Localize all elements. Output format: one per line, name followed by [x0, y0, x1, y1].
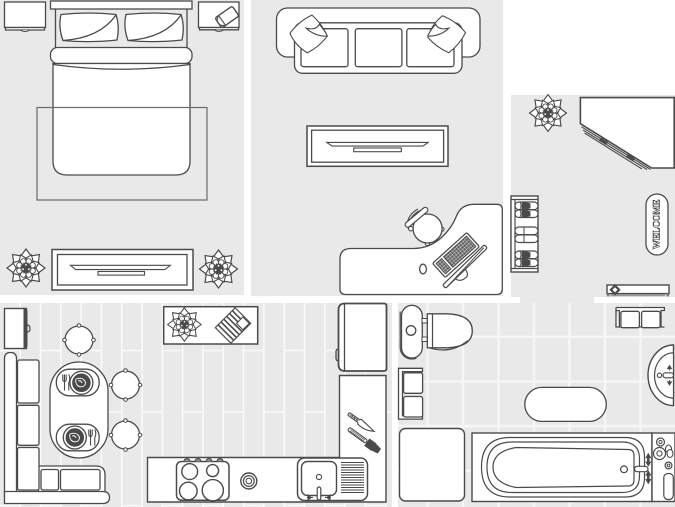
svg-text:WELCOME: WELCOME — [653, 200, 663, 250]
